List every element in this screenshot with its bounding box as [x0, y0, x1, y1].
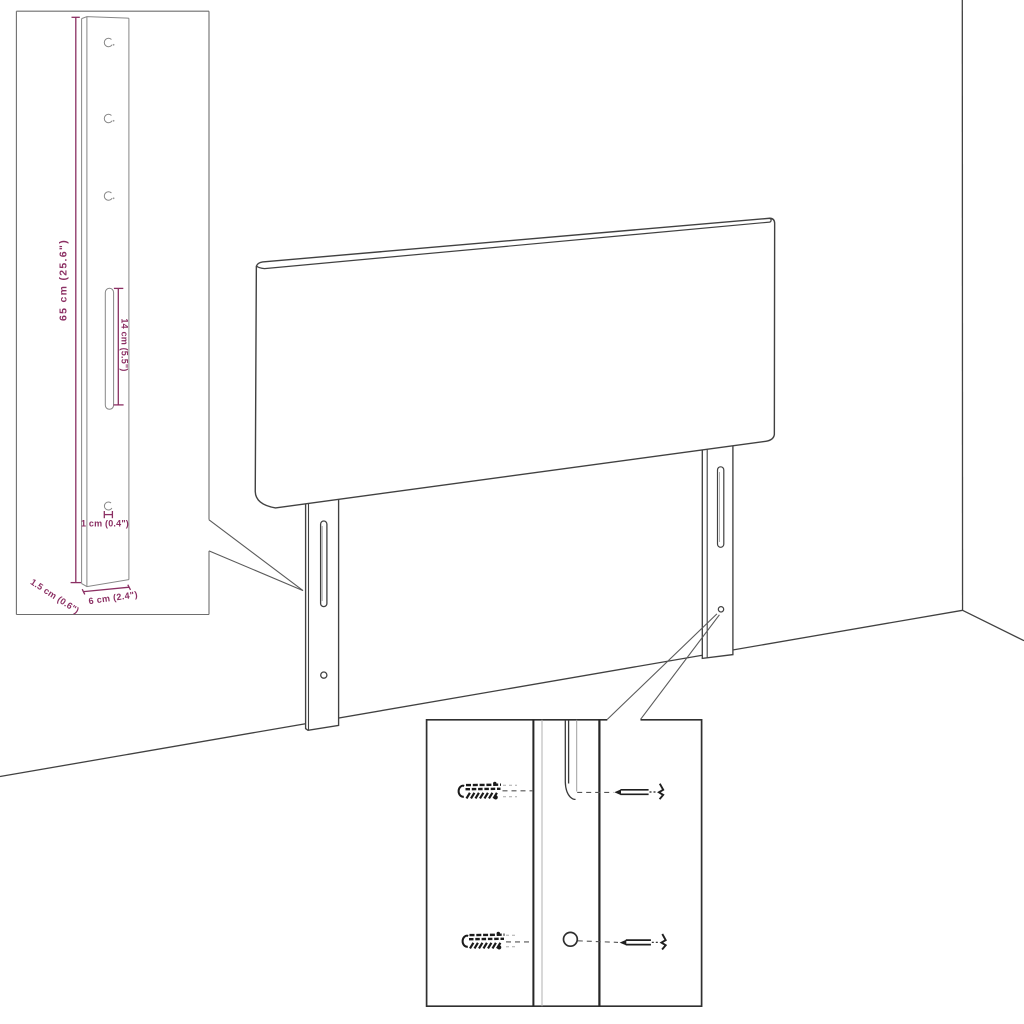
svg-text:65 cm (25.6"): 65 cm (25.6") — [57, 239, 69, 321]
svg-text:14 cm (5.5"): 14 cm (5.5") — [120, 318, 130, 371]
svg-text:1 cm (0.4"): 1 cm (0.4") — [81, 518, 129, 528]
